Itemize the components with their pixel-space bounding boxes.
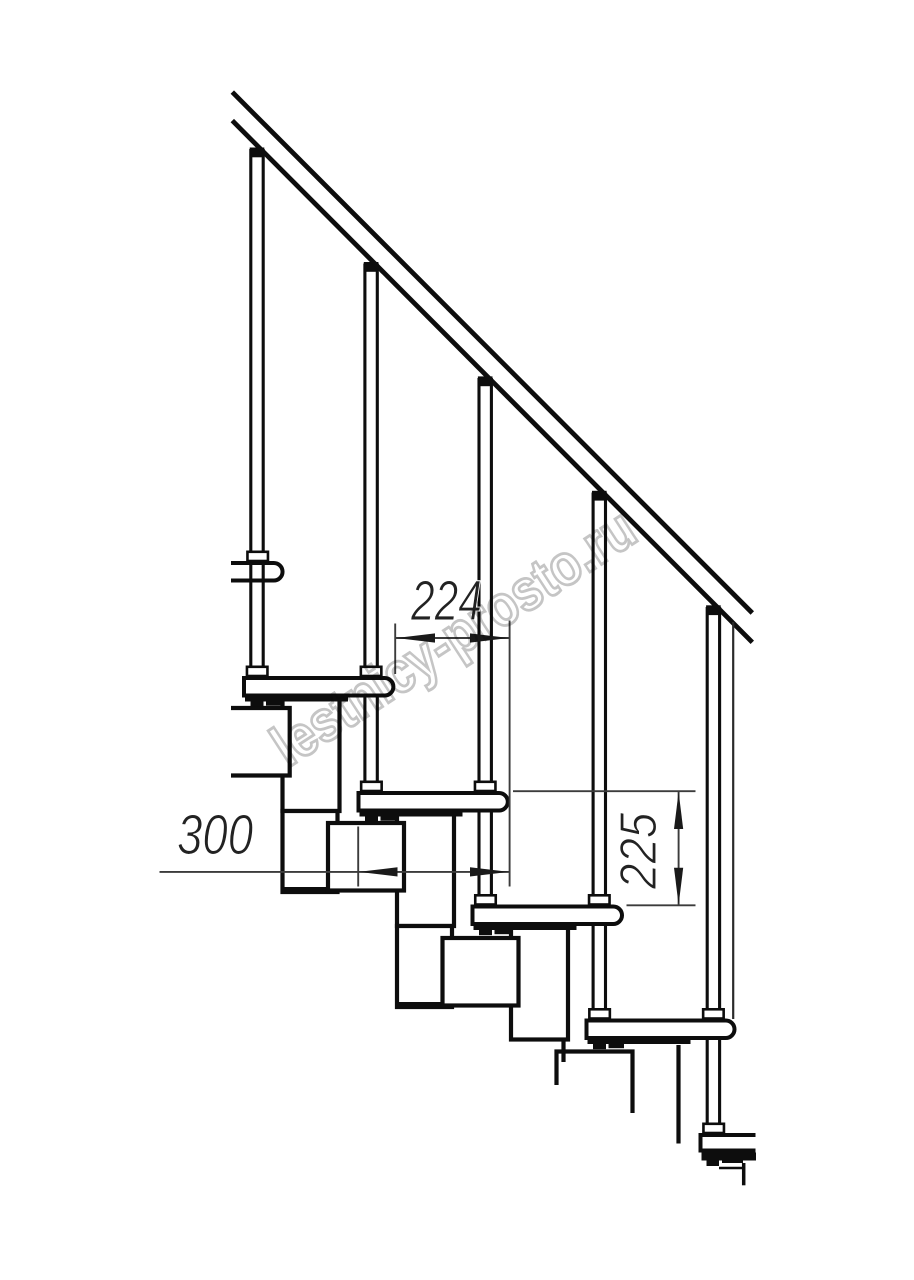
svg-text:300: 300 xyxy=(177,802,253,866)
svg-text:225: 225 xyxy=(610,812,667,890)
